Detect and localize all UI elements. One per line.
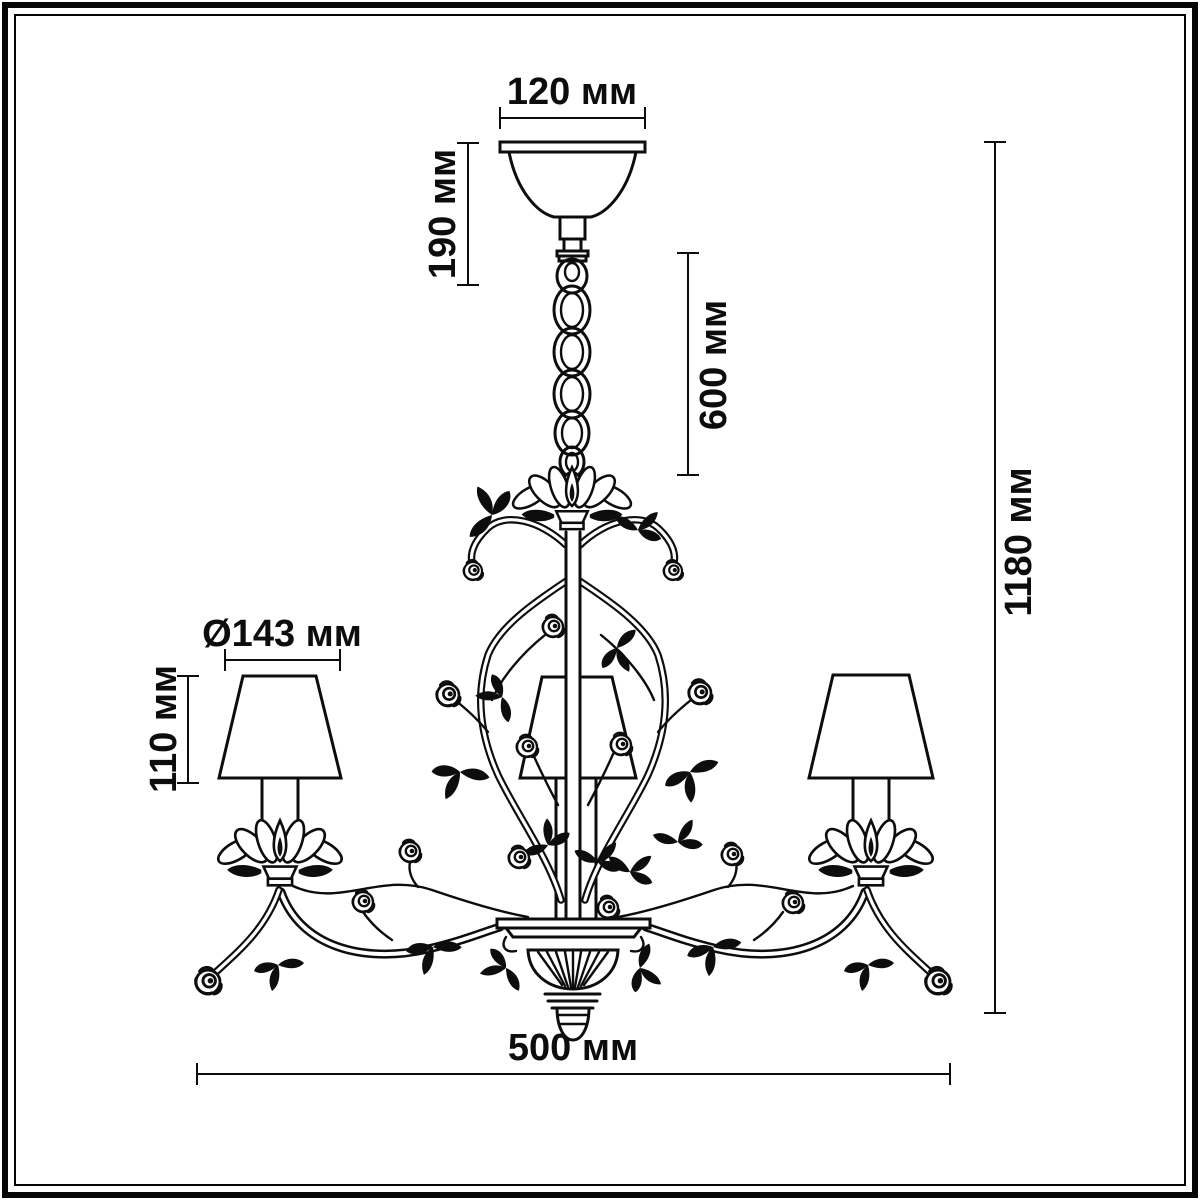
chandelier-dimension-diagram: 120 мм 190 мм 600 мм 1180 мм Ø143 мм	[0, 0, 1200, 1200]
chain	[554, 259, 590, 492]
dim-shade-height: 110 мм	[143, 665, 199, 793]
chandelier-line-drawing: 120 мм 190 мм 600 мм 1180 мм Ø143 мм	[0, 0, 1200, 1200]
dim-label-canopy-width: 120 мм	[507, 71, 637, 113]
shade-left	[219, 676, 341, 840]
shade-right	[809, 675, 933, 840]
central-column	[566, 532, 580, 922]
bobeche-left	[214, 818, 345, 886]
arm-left	[216, 862, 528, 972]
dim-chain-length: 600 мм	[677, 253, 735, 475]
dim-label-shade-height: 110 мм	[143, 665, 185, 793]
dim-canopy-height: 190 мм	[422, 143, 479, 285]
dim-canopy-width: 120 мм	[500, 71, 645, 129]
dim-label-shade-diameter: Ø143 мм	[202, 613, 362, 655]
dim-total-height: 1180 мм	[984, 142, 1040, 1013]
dim-total-width: 500 мм	[197, 1027, 950, 1085]
bobeche-right	[805, 818, 936, 886]
ceiling-canopy	[500, 142, 645, 261]
dim-shade-diameter: Ø143 мм	[202, 613, 362, 671]
dim-label-canopy-height: 190 мм	[422, 149, 464, 279]
dim-label-chain-length: 600 мм	[693, 300, 735, 430]
bottom-bowl	[497, 919, 650, 1040]
dim-label-total-height: 1180 мм	[998, 467, 1040, 616]
dim-label-total-width: 500 мм	[508, 1027, 638, 1069]
